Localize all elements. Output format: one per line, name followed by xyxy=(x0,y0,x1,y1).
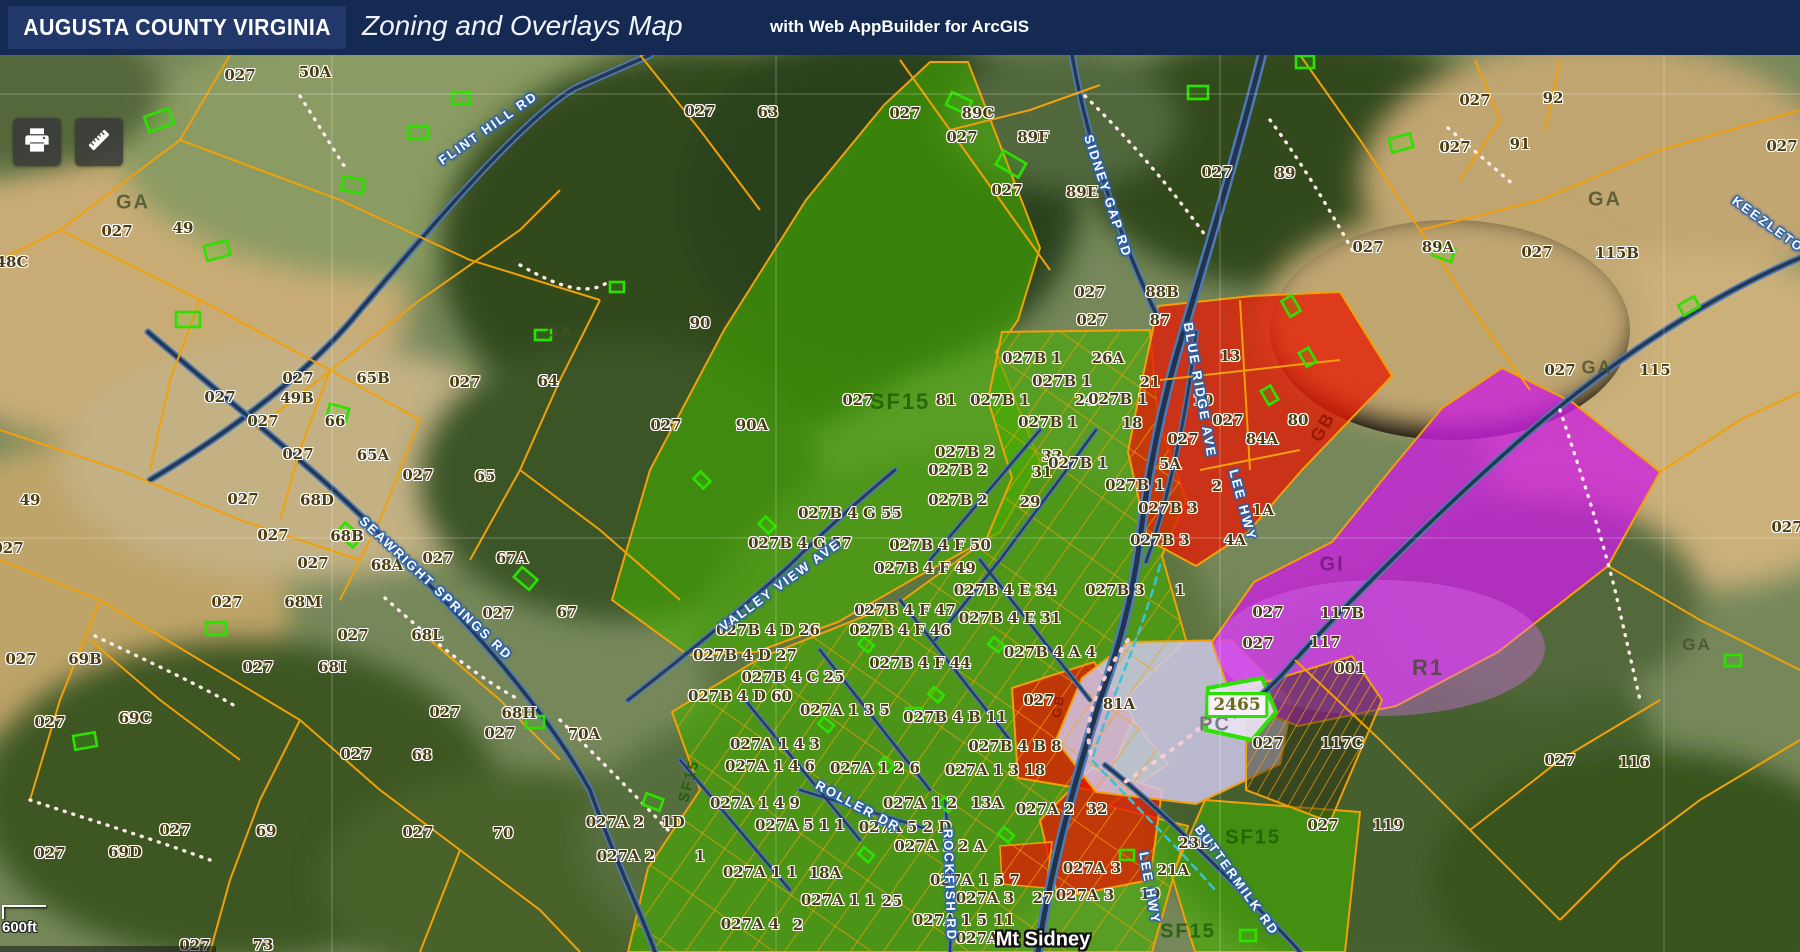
zone-sf15-east xyxy=(1172,800,1360,952)
ruler-icon xyxy=(84,125,114,160)
print-icon xyxy=(23,126,51,159)
scale-bar: 600ft xyxy=(2,905,46,936)
print-button[interactable] xyxy=(13,118,61,166)
app-header: AUGUSTA COUNTY VIRGINIA Zoning and Overl… xyxy=(0,0,1800,55)
zoning-map-app: 02750A0276302789C02789F02789E02789027494… xyxy=(0,0,1800,952)
map-title: Zoning and Overlays Map xyxy=(362,10,683,42)
county-title-box: AUGUSTA COUNTY VIRGINIA xyxy=(8,6,346,49)
measure-button[interactable] xyxy=(75,118,123,166)
attribution-strip xyxy=(0,946,216,952)
app-title: AUGUSTA COUNTY VIRGINIA xyxy=(23,14,331,41)
scale-bar-line xyxy=(2,905,46,919)
map-canvas[interactable]: 02750A0276302789C02789F02789E02789027494… xyxy=(0,0,1800,952)
app-subtitle: with Web AppBuilder for ArcGIS xyxy=(770,17,1029,37)
map-graphics xyxy=(0,0,1800,952)
scale-bar-label: 600ft xyxy=(2,919,46,936)
